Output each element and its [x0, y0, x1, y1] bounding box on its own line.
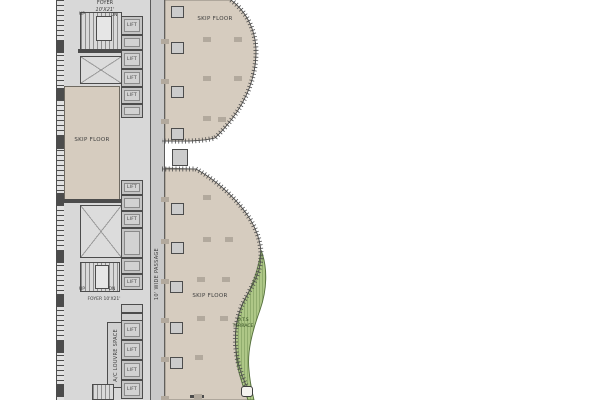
lift-shaft: LIFT [121, 211, 143, 228]
service-shaft-top [80, 56, 122, 84]
column-stub [197, 277, 205, 282]
column [171, 128, 184, 140]
lift-label: LIFT [127, 348, 137, 353]
lift-shaft: LIFT [121, 16, 143, 35]
column [171, 242, 184, 254]
column [171, 86, 184, 98]
column-stub [218, 117, 226, 122]
column-stub [161, 357, 169, 362]
column-stub [161, 318, 169, 323]
lift-shaft: LIFT [121, 320, 143, 340]
column-stub [161, 39, 169, 44]
lift-shaft: LIFT [121, 87, 143, 104]
skip-floor-label-lower: SKIP FLOOR [185, 293, 235, 299]
foyer-top-name: FOYER [88, 1, 122, 7]
dn-label-bottom: DN [106, 287, 118, 292]
lift-label: LIFT [127, 217, 137, 222]
lift-label: LIFT [127, 23, 137, 28]
column [170, 322, 183, 334]
column-stub [203, 116, 211, 121]
column-stub [220, 316, 228, 321]
column-stub [203, 237, 211, 242]
lift-shaft: LIFT [121, 360, 143, 380]
stair-bottom-landing [95, 265, 109, 289]
lift-label: LIFT [127, 93, 137, 98]
dn-label-top: DN [108, 13, 120, 18]
lift-shaft [121, 104, 143, 118]
column-stub [203, 37, 211, 42]
column-stub [195, 355, 203, 360]
lift-shaft: LIFT [121, 274, 143, 290]
column-stub [161, 197, 169, 202]
lift-label: LIFT [127, 57, 137, 62]
column [171, 42, 184, 54]
lift-label: LIFT [127, 76, 137, 81]
passage-label: 10' WIDE PASSAGE [154, 248, 160, 300]
lift-label: LIFT [127, 280, 137, 285]
wall-band-top [78, 49, 122, 53]
column-stub [225, 237, 233, 242]
column-gap [172, 149, 188, 166]
column [171, 6, 184, 18]
lift-shaft: LIFT [121, 50, 143, 69]
lift-shaft [121, 195, 143, 211]
column-stub [197, 316, 205, 321]
column-stub [203, 195, 211, 200]
wall-band-mid [64, 199, 122, 203]
lift-label: LIFT [127, 328, 137, 333]
lift-shaft: LIFT [121, 69, 143, 87]
skip-floor-label-upper: SKIP FLOOR [190, 16, 240, 22]
lift-label: LIFT [127, 368, 137, 373]
lift-shaft [121, 258, 143, 274]
column-stub [161, 396, 169, 400]
service-cell-1 [121, 304, 143, 313]
terrace-label-line2: TERRACE [226, 324, 260, 329]
lift-shaft: LIFT [121, 340, 143, 360]
column-stub [203, 76, 211, 81]
skip-floor-label-core: SKIP FLOOR [64, 137, 120, 143]
lift-shaft [121, 35, 143, 50]
column-stub [194, 394, 202, 399]
lift-label: LIFT [127, 387, 137, 392]
column [171, 203, 184, 215]
service-shaft-mid [80, 205, 122, 258]
lift-shaft: LIFT [121, 180, 143, 195]
lift-label: LIFT [127, 185, 137, 190]
lift-shaft [121, 228, 143, 258]
terrace-label-line1: O.T.S [228, 318, 258, 323]
ac-louvre-label: A/C LOUVRE SPACE [113, 329, 119, 382]
column [170, 357, 183, 369]
passage-label-wrap: 10' WIDE PASSAGE [149, 238, 165, 310]
column-stub [234, 37, 242, 42]
column [170, 281, 183, 293]
up-label-bottom: UP [76, 287, 88, 292]
stair-bottom-most [92, 384, 114, 400]
column-stub [161, 119, 169, 124]
column-stub [234, 76, 242, 81]
terrace-planter [241, 386, 253, 397]
stair-top-landing [96, 16, 112, 41]
foyer-bottom-label: FOYER 10'X21' [82, 297, 126, 302]
lift-shaft: LIFT [121, 380, 143, 399]
floor-plan-canvas: A/C LOUVRE SPACE LIFTLIFTLIFTLIFTLIFTLIF… [0, 0, 600, 400]
up-label-top: UP [76, 12, 88, 17]
column-stub [222, 277, 230, 282]
column-stub [161, 79, 169, 84]
